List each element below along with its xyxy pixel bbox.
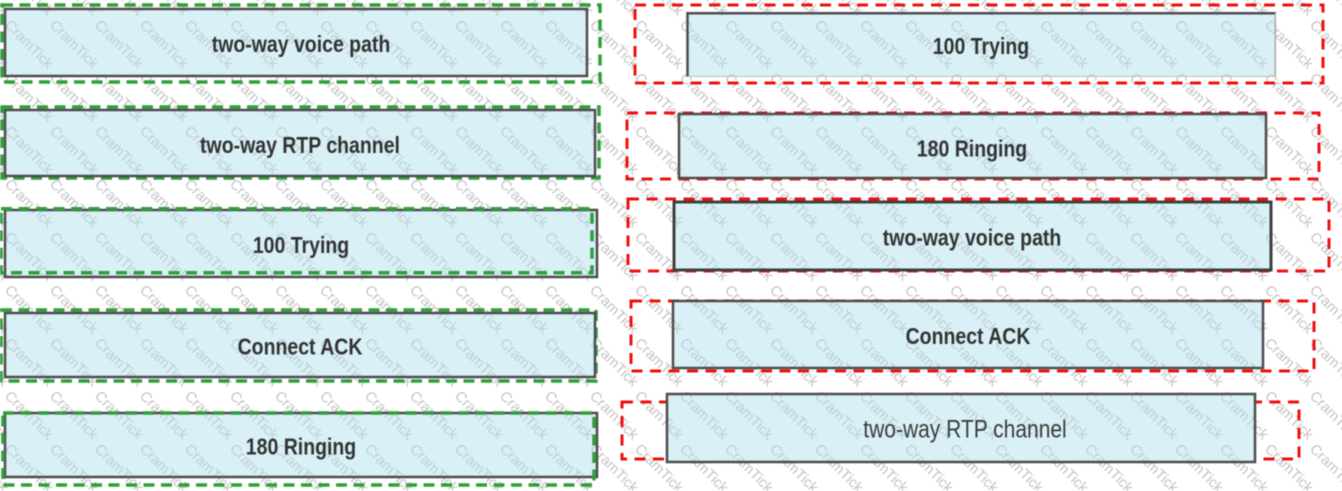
- svg-text:Connect ACK: Connect ACK: [906, 323, 1031, 349]
- svg-text:two-way RTP channel: two-way RTP channel: [863, 415, 1066, 443]
- svg-text:two-way voice path: two-way voice path: [883, 225, 1062, 251]
- svg-text:180 Ringing: 180 Ringing: [917, 136, 1027, 162]
- svg-text:100 Trying: 100 Trying: [933, 33, 1029, 59]
- svg-text:two-way RTP channel: two-way RTP channel: [200, 132, 400, 158]
- svg-text:100 Trying: 100 Trying: [253, 232, 349, 258]
- svg-text:Connect ACK: Connect ACK: [238, 334, 363, 360]
- svg-text:two-way voice path: two-way voice path: [212, 31, 391, 57]
- svg-text:180 Ringing: 180 Ringing: [246, 434, 356, 460]
